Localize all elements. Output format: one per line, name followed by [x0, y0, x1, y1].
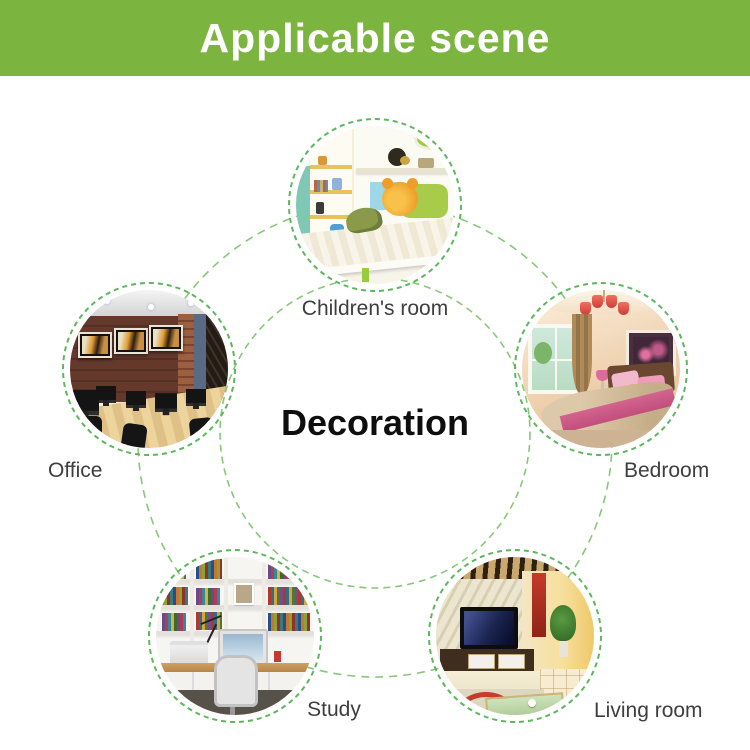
bed-leg	[362, 268, 369, 282]
book-row	[196, 559, 222, 579]
book-row	[162, 613, 186, 631]
chandelier-shade	[592, 295, 603, 308]
chandelier-stem	[603, 290, 605, 302]
center-title: Decoration	[0, 402, 750, 444]
ceiling-spotlight	[104, 298, 110, 304]
pooh-bear-plush	[382, 182, 418, 216]
red-accent-stripe	[532, 573, 546, 637]
bee-plush-stripe	[400, 156, 410, 165]
wall-art-frame	[149, 325, 183, 351]
chandelier-shade	[606, 295, 617, 308]
photo-study	[156, 557, 314, 715]
banner: Applicable scene	[0, 0, 750, 76]
console-drawer	[468, 654, 495, 669]
small-books	[314, 180, 328, 192]
book-row	[268, 562, 310, 580]
decor-ball	[528, 699, 536, 707]
applicable-scene-infographic: Applicable scene	[0, 0, 750, 750]
label-bedroom: Bedroom	[624, 459, 709, 483]
wall-art-frame	[78, 332, 112, 358]
toy-block	[318, 156, 327, 165]
ceiling-spotlight	[148, 304, 154, 310]
red-cup	[274, 651, 281, 662]
toy-block	[332, 178, 342, 190]
banner-title: Applicable scene	[200, 15, 551, 62]
label-living-room: Living room	[594, 699, 703, 723]
shelf-divider	[190, 557, 194, 647]
wall-art-frame	[114, 328, 148, 354]
label-office: Office	[48, 459, 102, 483]
shelf-board	[156, 605, 314, 609]
book-row	[160, 561, 186, 579]
framed-photo	[234, 583, 254, 605]
chandelier-shade	[618, 302, 629, 315]
potted-plant	[550, 605, 576, 641]
plant-pot	[559, 641, 568, 657]
toy-penguin	[316, 202, 324, 214]
monitor	[96, 386, 116, 403]
photo-childrens-room	[296, 126, 454, 284]
label-study: Study	[284, 698, 384, 722]
flat-screen-tv	[460, 607, 518, 649]
ceiling-spotlight	[188, 300, 194, 306]
curtain	[572, 314, 592, 394]
greenery-outside	[534, 342, 552, 364]
book-row	[268, 613, 310, 631]
console-drawer	[498, 654, 525, 669]
desk-chair	[214, 655, 258, 707]
green-oval-decor	[414, 128, 446, 150]
book-row	[196, 588, 220, 606]
book-row	[158, 587, 188, 605]
shelf-item	[418, 158, 434, 168]
label-childrens-room: Children's room	[225, 297, 525, 321]
book-row	[268, 587, 310, 605]
photo-living-room	[436, 557, 594, 715]
wall-shelf	[356, 168, 454, 173]
